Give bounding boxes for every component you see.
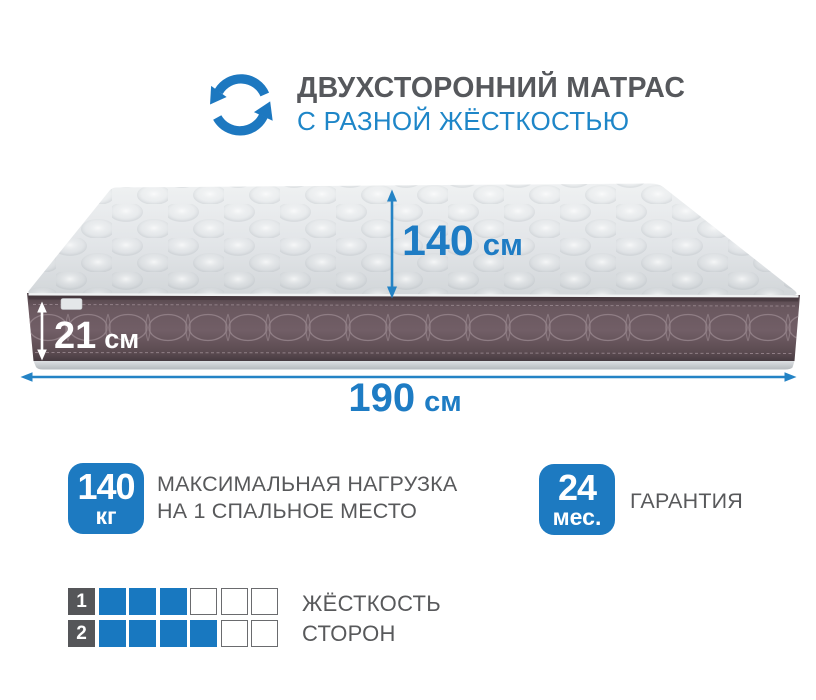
firmness-cell-empty bbox=[251, 620, 278, 647]
max-load-label-line2: НА 1 СПАЛЬНОЕ МЕСТО bbox=[157, 498, 457, 525]
max-load-label-line1: МАКСИМАЛЬНАЯ НАГРУЗКА bbox=[157, 471, 457, 498]
mattress-infographic: ДВУХСТОРОННИЙ МАТРАС С РАЗНОЙ ЖЁСТКОСТЬЮ bbox=[0, 0, 816, 700]
firmness-cell-filled bbox=[160, 620, 187, 647]
firmness-cell-empty bbox=[190, 588, 217, 615]
mattress-side bbox=[27, 293, 800, 361]
firmness-label: ЖЁСТКОСТЬ СТОРОН bbox=[302, 589, 441, 648]
firmness-row-2-cells bbox=[99, 620, 279, 647]
firmness-cell-filled bbox=[99, 588, 126, 615]
firmness-cell-empty bbox=[251, 588, 278, 615]
firmness-row-1: 1 bbox=[68, 588, 278, 615]
max-load-value: 140 bbox=[77, 470, 134, 504]
max-load-badge: 140 кг bbox=[68, 463, 144, 534]
warranty-unit: мес. bbox=[553, 506, 602, 529]
mattress-base bbox=[34, 361, 795, 370]
firmness-cell-filled bbox=[160, 588, 187, 615]
firmness-cell-empty bbox=[221, 588, 248, 615]
firmness-row-2: 2 bbox=[68, 620, 278, 647]
firmness-label-line2: СТОРОН bbox=[302, 619, 441, 649]
length-dimension-label: 190см bbox=[348, 376, 461, 420]
warranty-value: 24 bbox=[558, 471, 596, 505]
firmness-label-line1: ЖЁСТКОСТЬ bbox=[302, 589, 441, 619]
firmness-row-1-cells bbox=[99, 588, 279, 615]
mattress-tag bbox=[61, 299, 82, 310]
max-load-label: МАКСИМАЛЬНАЯ НАГРУЗКА НА 1 СПАЛЬНОЕ МЕСТ… bbox=[157, 471, 457, 525]
firmness-cell-filled bbox=[99, 620, 126, 647]
warranty-label: ГАРАНТИЯ bbox=[630, 487, 743, 515]
firmness-cell-filled bbox=[190, 620, 217, 647]
firmness-scale: 1 2 bbox=[68, 588, 278, 652]
warranty-badge: 24 мес. bbox=[539, 464, 615, 535]
warranty-label-line1: ГАРАНТИЯ bbox=[630, 487, 743, 515]
firmness-cell-filled bbox=[129, 620, 156, 647]
firmness-side-2-number: 2 bbox=[68, 620, 95, 647]
firmness-cell-empty bbox=[221, 620, 248, 647]
mattress-illustration: 140см 21см 190см bbox=[0, 0, 816, 430]
max-load-unit: кг bbox=[95, 505, 116, 528]
firmness-side-1-number: 1 bbox=[68, 588, 95, 615]
firmness-cell-filled bbox=[129, 588, 156, 615]
